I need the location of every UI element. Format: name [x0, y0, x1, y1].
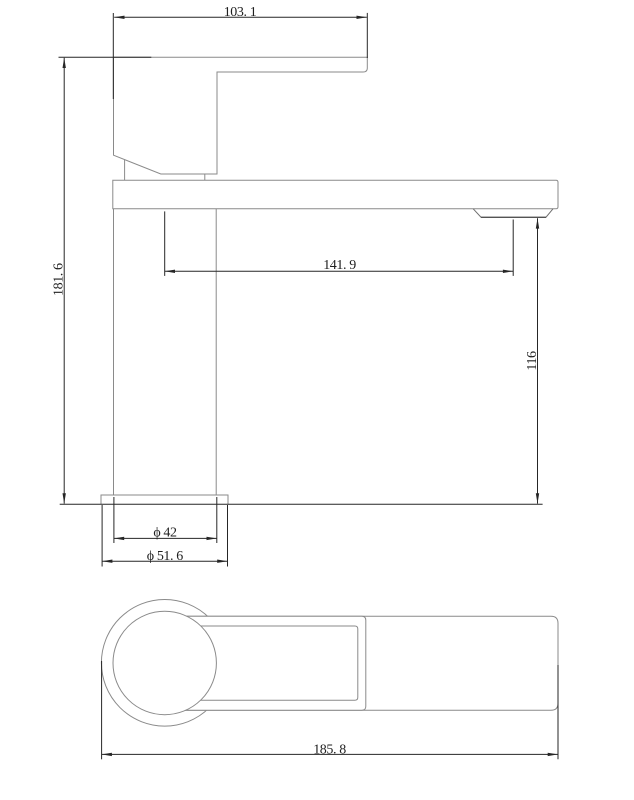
svg-text:181. 6: 181. 6 — [52, 263, 67, 296]
svg-text:141. 9: 141. 9 — [323, 258, 356, 273]
svg-text:ϕ 51. 6: ϕ 51. 6 — [147, 549, 183, 564]
svg-text:116: 116 — [525, 351, 540, 371]
svg-text:103. 1: 103. 1 — [224, 5, 257, 20]
svg-text:ϕ 42: ϕ 42 — [153, 525, 177, 540]
svg-text:185. 8: 185. 8 — [313, 742, 346, 757]
